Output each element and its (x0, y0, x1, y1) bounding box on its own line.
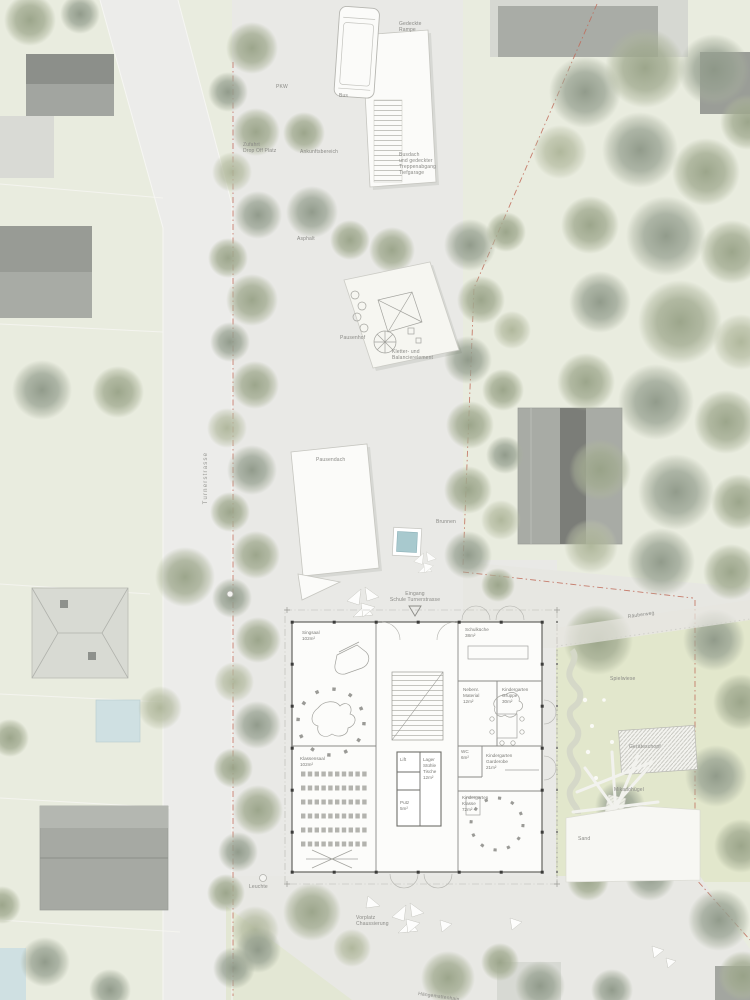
room-material-2: Material (463, 693, 479, 698)
pool (96, 700, 140, 742)
label-pausenhof: Pausenhof (340, 335, 366, 341)
label-sand: Sand (578, 836, 590, 842)
room-wc-2: 6m² (461, 755, 469, 760)
room-singsaal-2: 102m² (302, 636, 315, 641)
room-gruppe-3: 30m² (502, 699, 513, 704)
room-singsaal: Singsaal (302, 630, 320, 635)
label-zufahrt-2: Drop Off Platz (243, 148, 277, 154)
label-turnerstrasse: Turnerstrasse (203, 452, 209, 504)
room-schulkueche-2: 38m² (465, 633, 476, 638)
room-gruppe: Kindergarten (502, 687, 529, 692)
room-schulkueche: Schulküche (465, 627, 489, 632)
label-kletter-2: Balancierelement (392, 355, 433, 361)
label-ankunftsbereich: Ankunftsbereich (300, 149, 338, 155)
room-klassensaal: Klassensaal (300, 756, 325, 761)
sand-area (566, 806, 700, 882)
label-brunnen: Brunnen (436, 519, 456, 525)
room-material-3: 12m² (463, 699, 474, 704)
neighbor-building (26, 54, 114, 116)
neighbor-building (0, 226, 92, 318)
school-building-plan (284, 606, 560, 888)
fountain-brunnen (392, 527, 421, 556)
room-gruppe-2: Gruppe (502, 693, 518, 698)
room-garderobe-3: 21m² (486, 765, 497, 770)
label-busdach-4: Tiefgarage (399, 170, 424, 176)
room-wc: WC (461, 749, 469, 754)
label-asphalt: Asphalt (297, 236, 315, 242)
label-bus: Bus (339, 93, 348, 99)
neighbor-building (0, 116, 54, 178)
room-garderobe-2: Garderobe (486, 759, 508, 764)
room-klassensaal-2: 102m² (300, 762, 313, 767)
room-klasse-2: Klasse (462, 801, 476, 806)
room-lager: Lager (423, 757, 435, 762)
building-floor (292, 622, 542, 872)
room-garderobe: Kindergarten (486, 753, 513, 758)
bus-vehicle (334, 6, 380, 99)
tool-shed (619, 725, 698, 774)
label-leuchte: Leuchte (249, 884, 268, 890)
neighbor-building-hipped-roof (32, 588, 128, 678)
label-pkw: PKW (276, 84, 288, 90)
room-lift: Lift (400, 757, 407, 762)
site-plan: Gedeckte Rampe PKW Bus Zufahrt Drop Off … (0, 0, 750, 1000)
site-plan-drawing: Gedeckte Rampe PKW Bus Zufahrt Drop Off … (0, 0, 750, 1000)
label-vorplatz-2: Chaussierung (356, 921, 389, 927)
room-lager-2: Stühle (423, 763, 436, 768)
room-lager-4: 12m² (423, 775, 434, 780)
room-klasse-3: 72m² (462, 807, 473, 812)
neighbor-building (40, 806, 168, 910)
label-gedeckte-rampe-2: Rampe (399, 27, 416, 33)
label-pausendach: Pausendach (316, 457, 345, 463)
room-putz-2: 5m² (400, 806, 408, 811)
staircase (392, 672, 443, 740)
room-klasse: Kindergarten (462, 795, 489, 800)
room-putz: Putz (400, 800, 410, 805)
label-mikadohuegel: Mikadohügel (614, 787, 644, 793)
label-spielwiese: Spielwiese (610, 676, 635, 682)
label-eingang-2: Schule Turnerstrasse (390, 597, 440, 603)
label-geraeteschopf: Geräteschopf (629, 744, 661, 750)
room-lager-3: Tische (423, 769, 437, 774)
room-material: Nebenr. (463, 687, 479, 692)
